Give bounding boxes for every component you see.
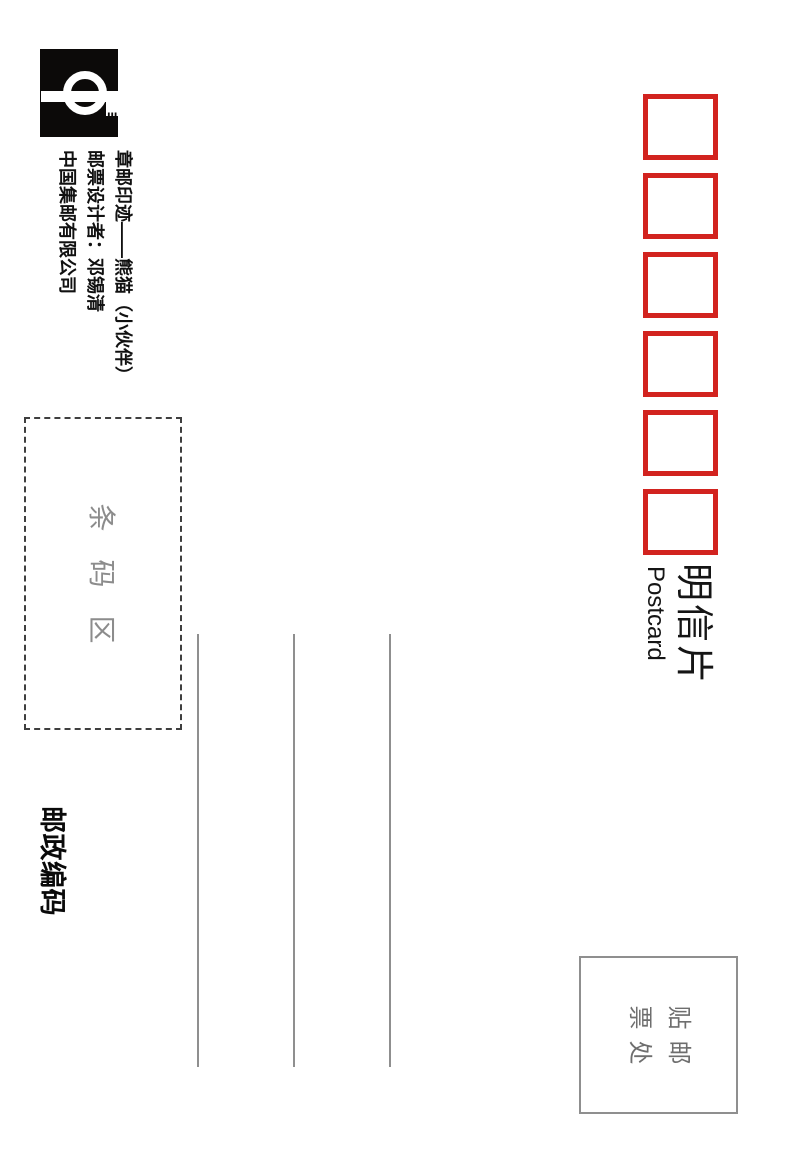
postal-code-boxes	[643, 94, 718, 555]
postcard-landscape-layer: 明信片 Postcard 贴邮 票处 条码区 邮政编码	[0, 0, 787, 1165]
postal-code-box	[643, 410, 718, 476]
postal-code-box	[643, 489, 718, 555]
postal-code-label: 邮政编码	[37, 806, 67, 916]
postcard-sheet: 明信片 Postcard 贴邮 票处 条码区 邮政编码	[0, 0, 787, 1165]
postcard-title-en: Postcard	[642, 566, 668, 661]
postal-code-box	[643, 173, 718, 239]
address-line-3	[197, 634, 199, 1067]
china-philately-logo-icon	[40, 49, 118, 137]
stamp-area-label-line-2: 票处	[627, 1006, 651, 1076]
postal-code-box	[643, 331, 718, 397]
address-line-1	[389, 634, 391, 1067]
credit-designer: 邮票设计者：邓锡清	[81, 150, 109, 384]
barcode-area-box: 条码区	[24, 417, 182, 730]
address-line-2	[293, 634, 295, 1067]
barcode-area-label: 条码区	[83, 503, 123, 671]
postal-code-box	[643, 252, 718, 318]
china-philately-logo	[40, 49, 118, 137]
postal-code-box	[643, 94, 718, 160]
credit-company: 中国集邮有限公司	[53, 150, 81, 384]
stamp-area-label-line-1: 贴邮	[666, 1006, 690, 1076]
credits-block: 章邮印迹——熊猫（小伙伴） 邮票设计者：邓锡清 中国集邮有限公司	[53, 150, 137, 384]
stamp-area-box: 贴邮 票处	[579, 956, 738, 1114]
postcard-title-cn: 明信片	[673, 563, 713, 686]
credit-series-title: 章邮印迹——熊猫（小伙伴）	[109, 150, 137, 384]
